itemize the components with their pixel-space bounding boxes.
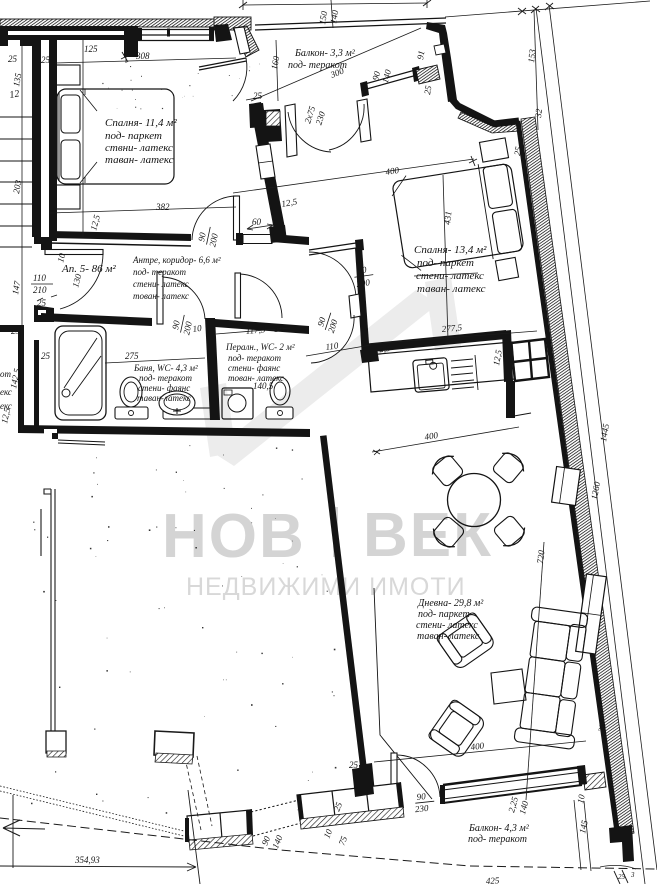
svg-text:стени- фаянс: стени- фаянс [228, 363, 280, 373]
svg-text:91: 91 [415, 50, 426, 61]
svg-text:ВЕК: ВЕК [363, 501, 493, 570]
svg-text:ствни- латекс: ствни- латекс [105, 142, 173, 154]
svg-text:стени- фаянс: стени- фаянс [138, 383, 190, 393]
svg-text:под- теракот: под- теракот [139, 373, 193, 383]
svg-text:277,5: 277,5 [441, 322, 463, 334]
svg-text:под- паркет: под- паркет [105, 130, 162, 142]
svg-text:230: 230 [414, 803, 429, 814]
svg-text:125: 125 [84, 44, 98, 54]
svg-text:таван- латекс: таван- латекс [417, 283, 486, 295]
svg-text:354,93: 354,93 [74, 855, 100, 865]
svg-text:431: 431 [442, 211, 453, 225]
svg-text:Спалня- 11,4 м²: Спалня- 11,4 м² [105, 117, 177, 129]
svg-text:Дневна- 29,8 м²: Дневна- 29,8 м² [417, 598, 484, 609]
svg-text:12: 12 [9, 88, 21, 101]
svg-text:под- паркет: под- паркет [417, 257, 474, 269]
svg-text:Балкон- 4,3 м²: Балкон- 4,3 м² [468, 823, 530, 834]
svg-text:НЕДВИЖИМИ ИМОТИ: НЕДВИЖИМИ ИМОТИ [186, 573, 466, 601]
svg-text:32: 32 [533, 108, 544, 119]
svg-text:стени- латекс: стени- латекс [416, 620, 478, 631]
svg-text:25: 25 [253, 91, 263, 101]
svg-text:под- паркет: под- паркет [418, 609, 470, 620]
svg-text:25: 25 [37, 298, 47, 308]
svg-text:110: 110 [325, 340, 340, 352]
svg-text:25: 25 [11, 326, 21, 336]
svg-text:400: 400 [470, 740, 485, 752]
svg-text:720: 720 [535, 549, 546, 564]
svg-text:382: 382 [155, 202, 170, 212]
svg-text:308: 308 [135, 51, 150, 61]
svg-text:тован- латекс: тован- латекс [133, 291, 189, 301]
svg-text:140,5: 140,5 [253, 381, 274, 391]
svg-text:стени- латекс: стени- латекс [416, 270, 484, 282]
svg-text:Баня, WC- 4,3 м²: Баня, WC- 4,3 м² [133, 363, 198, 373]
svg-text:3: 3 [630, 871, 635, 879]
svg-text:117,5: 117,5 [245, 324, 266, 336]
svg-text:200: 200 [356, 277, 371, 289]
svg-text:Спалня- 13,4 м²: Спалня- 13,4 м² [414, 244, 487, 256]
svg-text:Антре, коридор- 6,6 м²: Антре, коридор- 6,6 м² [132, 255, 221, 265]
svg-text:10: 10 [273, 323, 283, 334]
svg-text:Пералн., WC- 2 м²: Пералн., WC- 2 м² [225, 342, 295, 352]
svg-text:110: 110 [33, 273, 46, 283]
svg-text:425: 425 [486, 875, 501, 884]
svg-text:60: 60 [252, 217, 262, 227]
svg-text:275: 275 [125, 351, 139, 361]
svg-text:25: 25 [41, 55, 51, 65]
svg-text:НОВ: НОВ [162, 502, 306, 571]
svg-text:под- теракот: под- теракот [468, 834, 527, 845]
svg-text:25: 25 [41, 351, 51, 361]
svg-text:стени- латекс: стени- латекс [133, 279, 189, 289]
svg-text:Балкон- 3,3 м²: Балкон- 3,3 м² [294, 48, 356, 59]
svg-text:екс: екс [0, 401, 12, 411]
svg-text:Ап. 5- 86 м²: Ап. 5- 86 м² [61, 263, 116, 275]
svg-text:екс: екс [0, 387, 12, 397]
svg-text:25: 25 [8, 54, 18, 64]
svg-text:210: 210 [33, 285, 47, 295]
svg-text:таван- латекс: таван- латекс [105, 154, 174, 166]
svg-text:25: 25 [618, 873, 626, 881]
svg-text:153: 153 [526, 48, 537, 63]
svg-text:25: 25 [349, 760, 359, 770]
svg-text:под- теракот: под- теракот [228, 353, 282, 363]
svg-text:таван-латекс: таван-латекс [137, 393, 191, 403]
svg-text:под- теракот: под- теракот [133, 267, 187, 277]
svg-text:от: от [0, 369, 12, 379]
svg-text:90: 90 [416, 791, 426, 802]
svg-text:таван- латекс: таван- латекс [417, 631, 480, 642]
